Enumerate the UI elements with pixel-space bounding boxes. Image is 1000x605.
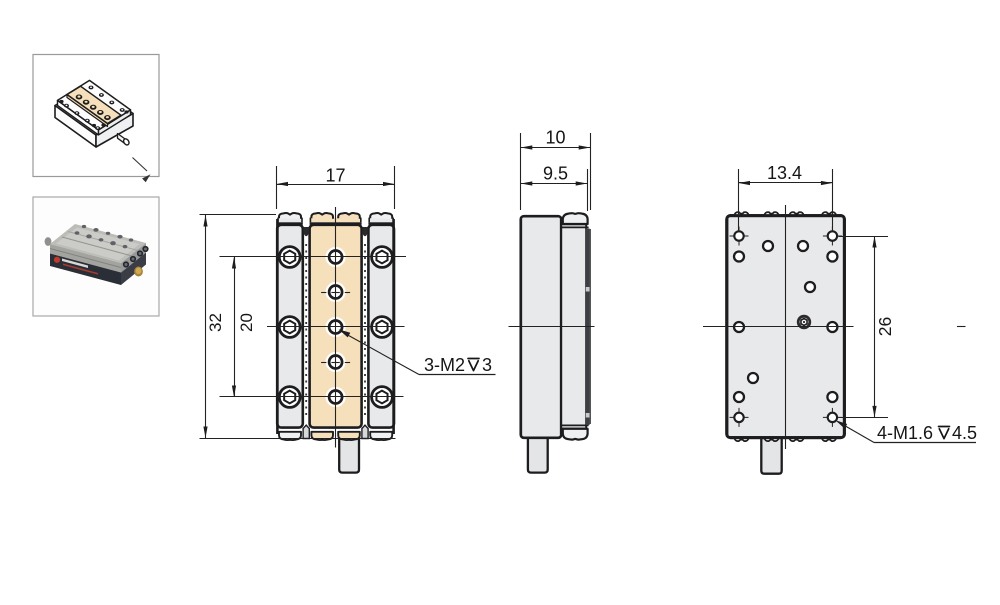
- svg-text:17: 17: [325, 165, 345, 185]
- svg-text:20: 20: [237, 313, 256, 332]
- svg-text:4-M1.6: 4-M1.6: [877, 423, 933, 443]
- svg-text:4.5: 4.5: [952, 423, 977, 443]
- svg-text:26: 26: [875, 317, 895, 336]
- svg-text:3-M2: 3-M2: [424, 355, 465, 375]
- svg-text:32: 32: [206, 313, 225, 332]
- svg-text:10: 10: [545, 128, 565, 148]
- svg-text:13.4: 13.4: [767, 163, 802, 183]
- svg-text:3: 3: [482, 355, 492, 375]
- svg-text:9.5: 9.5: [543, 164, 568, 184]
